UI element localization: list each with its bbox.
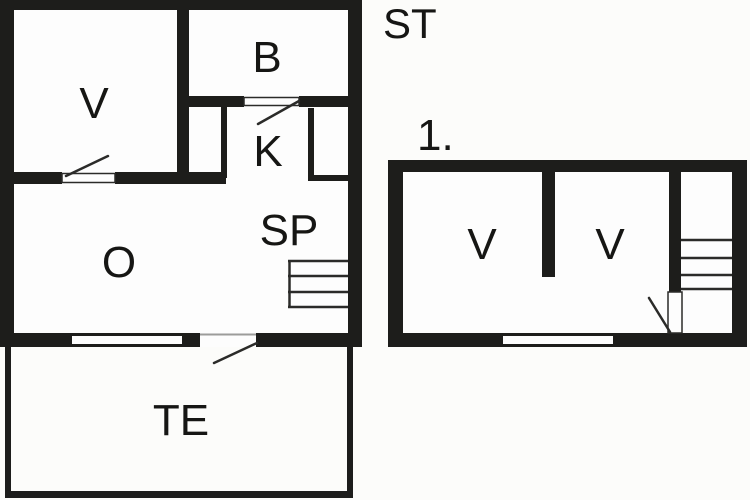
wall-bottom-segment [256, 333, 362, 347]
ground-floor-plan: V B K O SP TE ST [0, 0, 437, 498]
terrace-wall-left [5, 347, 11, 498]
wall-bedroom-bottom-segment [115, 172, 226, 184]
wall-top [0, 0, 362, 10]
wall-kitchen-left [221, 107, 227, 178]
room-label-bedroom: V [79, 79, 109, 128]
closet-bottom-line [308, 175, 348, 181]
first-floor-tag: 1. [417, 111, 454, 160]
closet-left-line [308, 108, 314, 181]
room-label-terrace: TE [153, 396, 209, 445]
ground-floor-tag: ST [383, 0, 437, 47]
wall-bathroom-bottom-segment [299, 96, 348, 107]
room-label-living-room: O [102, 238, 136, 287]
floor-plan-drawing: V B K O SP TE ST [0, 0, 750, 500]
room-label-bedroom-right: V [595, 220, 625, 269]
room-label-kitchen: K [253, 127, 282, 176]
wall-right [732, 160, 747, 347]
wall-top [388, 160, 747, 172]
first-floor-plan: V V 1. [388, 111, 747, 347]
wall-bottom-segment [182, 333, 200, 347]
terrace-wall-right [347, 347, 353, 498]
wall-left [0, 0, 14, 347]
wall-bottom-segment [0, 333, 72, 347]
room-label-bathroom: B [252, 33, 281, 82]
window-frame-line [72, 333, 182, 336]
room-label-pantry: SP [260, 206, 319, 255]
room-label-bedroom-left: V [467, 220, 497, 269]
window-frame-line [503, 333, 613, 336]
window-frame-line [72, 344, 182, 347]
wall-stair-hall [669, 172, 681, 292]
wall-bottom-segment [613, 333, 747, 347]
stair-hall-door-leaf [668, 292, 682, 333]
floor-plan-image: V B K O SP TE ST [0, 0, 750, 500]
wall-left [388, 160, 403, 347]
window-frame-line [503, 344, 613, 347]
first-floor-area [388, 160, 747, 347]
terrace-wall-bottom [5, 491, 353, 498]
wall-bathroom-bottom-segment [177, 96, 244, 107]
wall-bedroom-bottom-segment [14, 172, 62, 184]
wall-bedrooms-divider [542, 172, 555, 277]
wall-right [348, 0, 362, 347]
wall-bottom-segment [388, 333, 503, 347]
